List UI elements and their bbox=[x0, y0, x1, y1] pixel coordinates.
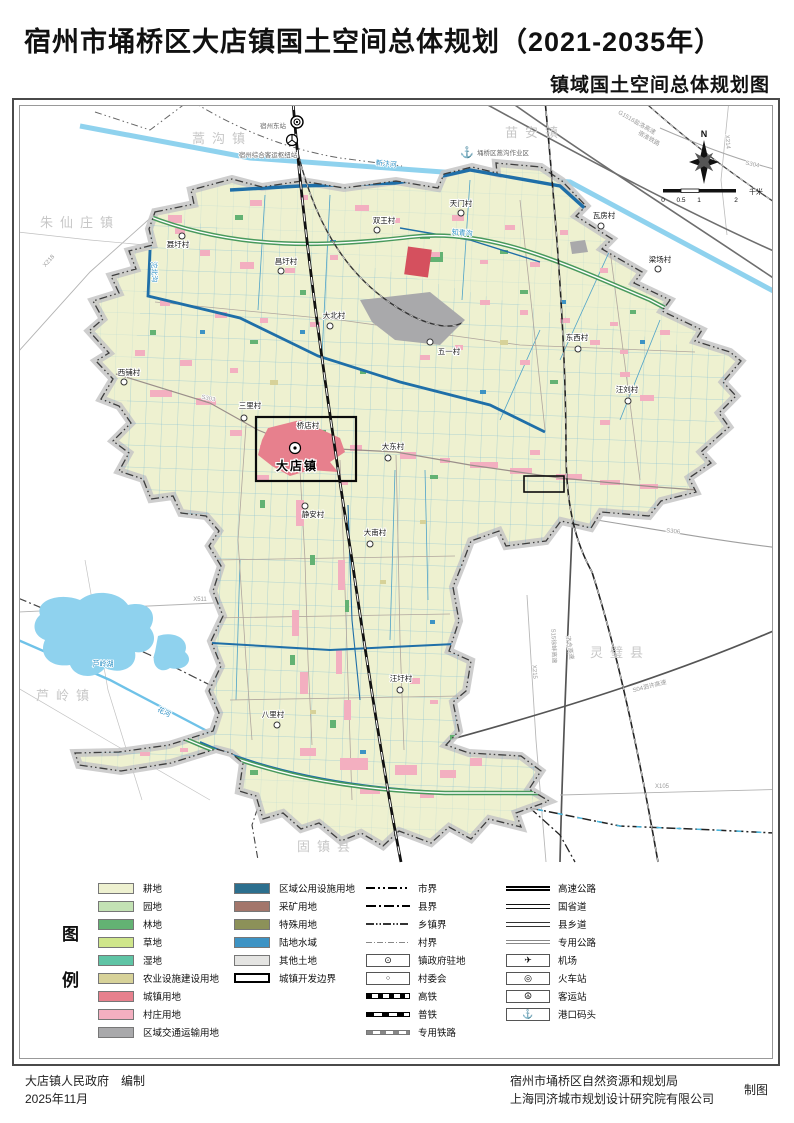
legend-item: 城镇开发边界 bbox=[234, 969, 355, 987]
port-icon: ⚓ bbox=[506, 1008, 550, 1021]
station-label: 埇桥区蒿沟作业区 bbox=[477, 148, 530, 157]
swatch bbox=[98, 919, 134, 930]
town-label: 大店镇 bbox=[276, 458, 318, 473]
expressway-sample bbox=[506, 886, 550, 891]
legend-item: 高速公路 bbox=[506, 879, 596, 897]
village-label: 桥店村 bbox=[297, 420, 320, 430]
line-sample bbox=[366, 882, 410, 894]
legend-item: 县界 bbox=[366, 897, 466, 915]
village-label: 大北村 bbox=[323, 310, 346, 320]
swatch bbox=[98, 937, 134, 948]
swatch bbox=[98, 973, 134, 984]
legend-item: ✈机场 bbox=[506, 951, 596, 969]
legend-item: 专用铁路 bbox=[366, 1023, 466, 1041]
village-label: 三里村 bbox=[239, 400, 262, 410]
legend-item: 区域公用设施用地 bbox=[234, 879, 355, 897]
legend-heading-2: 例 bbox=[62, 966, 79, 991]
neighbor-label: 灵璧县 bbox=[590, 645, 650, 660]
development-boundary-swatch bbox=[234, 973, 270, 983]
village-label: 汪刘村 bbox=[616, 384, 639, 394]
road-label: G1516盐洛高速 bbox=[617, 108, 657, 136]
scale-tick: 0.5 bbox=[676, 197, 685, 204]
village-label: 汪圩村 bbox=[390, 673, 413, 683]
footer-left: 大店镇人民政府 编制 2025年11月 bbox=[25, 1072, 145, 1108]
date: 2025年11月 bbox=[25, 1090, 145, 1108]
swatch bbox=[234, 919, 270, 930]
road-label: S15徐蚌高速 bbox=[549, 628, 558, 663]
legend-item: 园地 bbox=[98, 897, 219, 915]
train-station-icon: ◎ bbox=[506, 972, 550, 985]
legend-item: ☮客运站 bbox=[506, 987, 596, 1005]
legend-item: 其他土地 bbox=[234, 951, 355, 969]
road-label: X215 bbox=[531, 665, 538, 680]
village-label: 东西村 bbox=[566, 332, 589, 342]
swatch bbox=[98, 1027, 134, 1038]
compiled-by: 大店镇人民政府 编制 bbox=[25, 1072, 145, 1090]
special-road-sample bbox=[506, 940, 550, 944]
urban-patch bbox=[404, 246, 432, 277]
rail-line-sample bbox=[366, 1012, 410, 1017]
legend-item: ⊙镇政府驻地 bbox=[366, 951, 466, 969]
village-label: 天门村 bbox=[450, 198, 473, 208]
compass-rose: N bbox=[686, 129, 723, 184]
legend-col-boundaries: 市界 县界 乡镇界 村界 ⊙镇政府驻地 ○村委会 高铁 普铁 专用铁路 bbox=[366, 879, 466, 1041]
scale-unit: 千米 bbox=[749, 187, 763, 196]
swatch bbox=[98, 883, 134, 894]
legend-item: 普铁 bbox=[366, 1005, 466, 1023]
bus-station-icon bbox=[287, 135, 298, 146]
town-gov-sample: ⊙ bbox=[366, 954, 410, 967]
neighbor-label: 固镇县 bbox=[297, 839, 357, 854]
compass-n: N bbox=[701, 129, 708, 139]
station-label: 宿州综合客运枢纽站 bbox=[239, 150, 298, 159]
road-label: X218 bbox=[42, 254, 56, 269]
village-label: 大南村 bbox=[364, 527, 387, 537]
road-label: S04泗许高速 bbox=[632, 678, 668, 694]
village-label: 瓦房村 bbox=[593, 210, 616, 220]
line-sample bbox=[366, 918, 410, 930]
village-label: 大东村 bbox=[382, 441, 405, 451]
village-label: 五一村 bbox=[438, 346, 461, 356]
footer-right: 宿州市埇桥区自然资源和规划局 上海同济城市规划设计研究院有限公司 bbox=[510, 1072, 714, 1108]
swatch bbox=[234, 955, 270, 966]
legend-item: 村庄用地 bbox=[98, 1005, 219, 1023]
swatch bbox=[234, 901, 270, 912]
scale-tick: 1 bbox=[697, 197, 701, 204]
line-sample bbox=[366, 900, 410, 912]
village-label: 梁场村 bbox=[649, 254, 672, 264]
legend-item: 高铁 bbox=[366, 987, 466, 1005]
neighbor-label: 蒿沟镇 bbox=[192, 131, 252, 146]
village-label: 静安村 bbox=[302, 509, 325, 519]
road-label: S304 bbox=[745, 161, 761, 170]
legend-item: 村界 bbox=[366, 933, 466, 951]
legend-col-landuse-1: 耕地 园地 林地 草地 湿地 农业设施建设用地 城镇用地 村庄用地 区域交通运输… bbox=[98, 879, 219, 1041]
legend-item: 区域交通运输用地 bbox=[98, 1023, 219, 1041]
port-anchor-icon: ⚓ bbox=[460, 146, 474, 159]
legend-item: 县乡道 bbox=[506, 915, 596, 933]
swatch bbox=[98, 1009, 134, 1020]
road-label: X214 bbox=[723, 135, 730, 150]
legend-item: 乡镇界 bbox=[366, 915, 466, 933]
station-labels: 宿州东站 宿州综合客运枢纽站 埇桥区蒿沟作业区 bbox=[239, 121, 530, 159]
lake-label: 芦岭湖 bbox=[93, 659, 114, 668]
legend-item: 农业设施建设用地 bbox=[98, 969, 219, 987]
legend-item: 专用公路 bbox=[506, 933, 596, 951]
legend-item: 国省道 bbox=[506, 897, 596, 915]
swatch bbox=[234, 883, 270, 894]
national-road-sample bbox=[506, 904, 550, 909]
county-road-sample bbox=[506, 922, 550, 927]
legend-item: ◎火车站 bbox=[506, 969, 596, 987]
hsr-line-sample bbox=[366, 993, 410, 999]
swatch bbox=[98, 901, 134, 912]
legend-item: 市界 bbox=[366, 879, 466, 897]
legend-item: ○村委会 bbox=[366, 969, 466, 987]
legend-item: 城镇用地 bbox=[98, 987, 219, 1005]
scale-tick: 2 bbox=[734, 197, 738, 204]
village-label: 双王村 bbox=[373, 215, 396, 225]
road-label: S306 bbox=[666, 528, 681, 536]
legend-item: 湿地 bbox=[98, 951, 219, 969]
village-label: 聂圩村 bbox=[167, 239, 190, 249]
scale-tick: 0 bbox=[661, 197, 665, 204]
legend: 图 例 耕地 园地 林地 草地 湿地 农业设施建设用地 城镇用地 村庄用地 区域… bbox=[20, 874, 772, 1056]
airport-icon: ✈ bbox=[506, 954, 550, 967]
legend-heading-1: 图 bbox=[62, 920, 79, 945]
village-committee-sample: ○ bbox=[366, 972, 410, 985]
road-label: 济合高速 bbox=[564, 635, 576, 660]
special-rail-sample bbox=[366, 1030, 410, 1035]
station-label: 宿州东站 bbox=[260, 121, 287, 130]
legend-item: 采矿用地 bbox=[234, 897, 355, 915]
map-subtitle: 镇域国土空间总体规划图 bbox=[550, 70, 770, 97]
legend-col-transport: 高速公路 国省道 县乡道 专用公路 ✈机场 ◎火车站 ☮客运站 ⚓港口码头 bbox=[506, 879, 596, 1023]
page-title: 宿州市埇桥区大店镇国土空间总体规划（2021-2035年） bbox=[24, 20, 722, 59]
neighbor-label: 苗安镇 bbox=[505, 125, 565, 140]
drafted-by: 制图 bbox=[744, 1081, 768, 1098]
road-label: X105 bbox=[655, 784, 670, 790]
village-label: 八里村 bbox=[262, 709, 285, 719]
village-label: 昌圩村 bbox=[275, 256, 298, 266]
design-institute: 上海同济城市规划设计研究院有限公司 bbox=[510, 1090, 714, 1108]
village-label: 西铺村 bbox=[118, 367, 141, 377]
road-label: X511 bbox=[193, 597, 207, 603]
swatch bbox=[98, 991, 134, 1002]
legend-item: 草地 bbox=[98, 933, 219, 951]
bureau: 宿州市埇桥区自然资源和规划局 bbox=[510, 1072, 714, 1090]
neighbor-label: 朱仙庄镇 bbox=[40, 215, 120, 230]
river-label: 花河 bbox=[156, 705, 173, 719]
legend-item: 特殊用地 bbox=[234, 915, 355, 933]
legend-col-landuse-2: 区域公用设施用地 采矿用地 特殊用地 陆地水域 其他土地 城镇开发边界 bbox=[234, 879, 355, 987]
legend-item: 耕地 bbox=[98, 879, 219, 897]
plan-sheet: 宿州市埇桥区大店镇国土空间总体规划（2021-2035年） 镇域国土空间总体规划… bbox=[0, 0, 794, 1123]
scale-bar: 0 0.5 1 2 千米 bbox=[661, 187, 763, 204]
line-sample bbox=[366, 936, 410, 948]
legend-item: 林地 bbox=[98, 915, 219, 933]
neighbor-label: 芦岭镇 bbox=[36, 688, 96, 703]
legend-item: 陆地水域 bbox=[234, 933, 355, 951]
swatch bbox=[234, 937, 270, 948]
legend-item: ⚓港口码头 bbox=[506, 1005, 596, 1023]
swatch bbox=[98, 955, 134, 966]
bus-station-icon: ☮ bbox=[506, 990, 550, 1003]
